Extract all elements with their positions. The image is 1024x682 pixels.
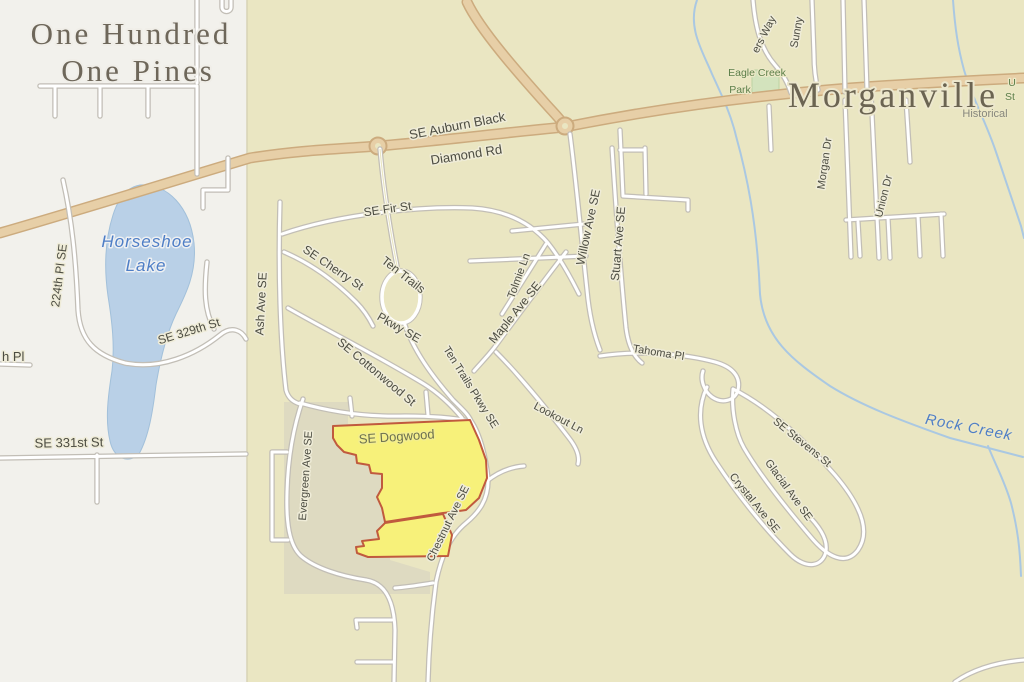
poi-label-historical: Historical (962, 108, 1007, 120)
place-label-one-hundred: One Hundred (31, 16, 232, 51)
map-svg[interactable]: One Hundred One Pines Morganville Horses… (0, 0, 1024, 682)
roundabout-east-island (562, 123, 568, 129)
map-canvas[interactable]: One Hundred One Pines Morganville Horses… (0, 0, 1024, 682)
water-label-lake: Lake (126, 256, 167, 275)
water-label-horseshoe: Horseshoe (101, 232, 192, 251)
place-label-one-pines: One Pines (61, 53, 215, 88)
park-label-eagle-creek: Eagle Creek (728, 67, 787, 79)
park-label-park: Park (729, 84, 751, 96)
park-label-corner-partial-1: U (1008, 77, 1016, 89)
park-label-corner-partial-2: St (1005, 91, 1015, 103)
street-label-se-331st-st: SE 331st St (34, 434, 103, 450)
street-label-h-pl-partial: h Pl (2, 349, 25, 364)
